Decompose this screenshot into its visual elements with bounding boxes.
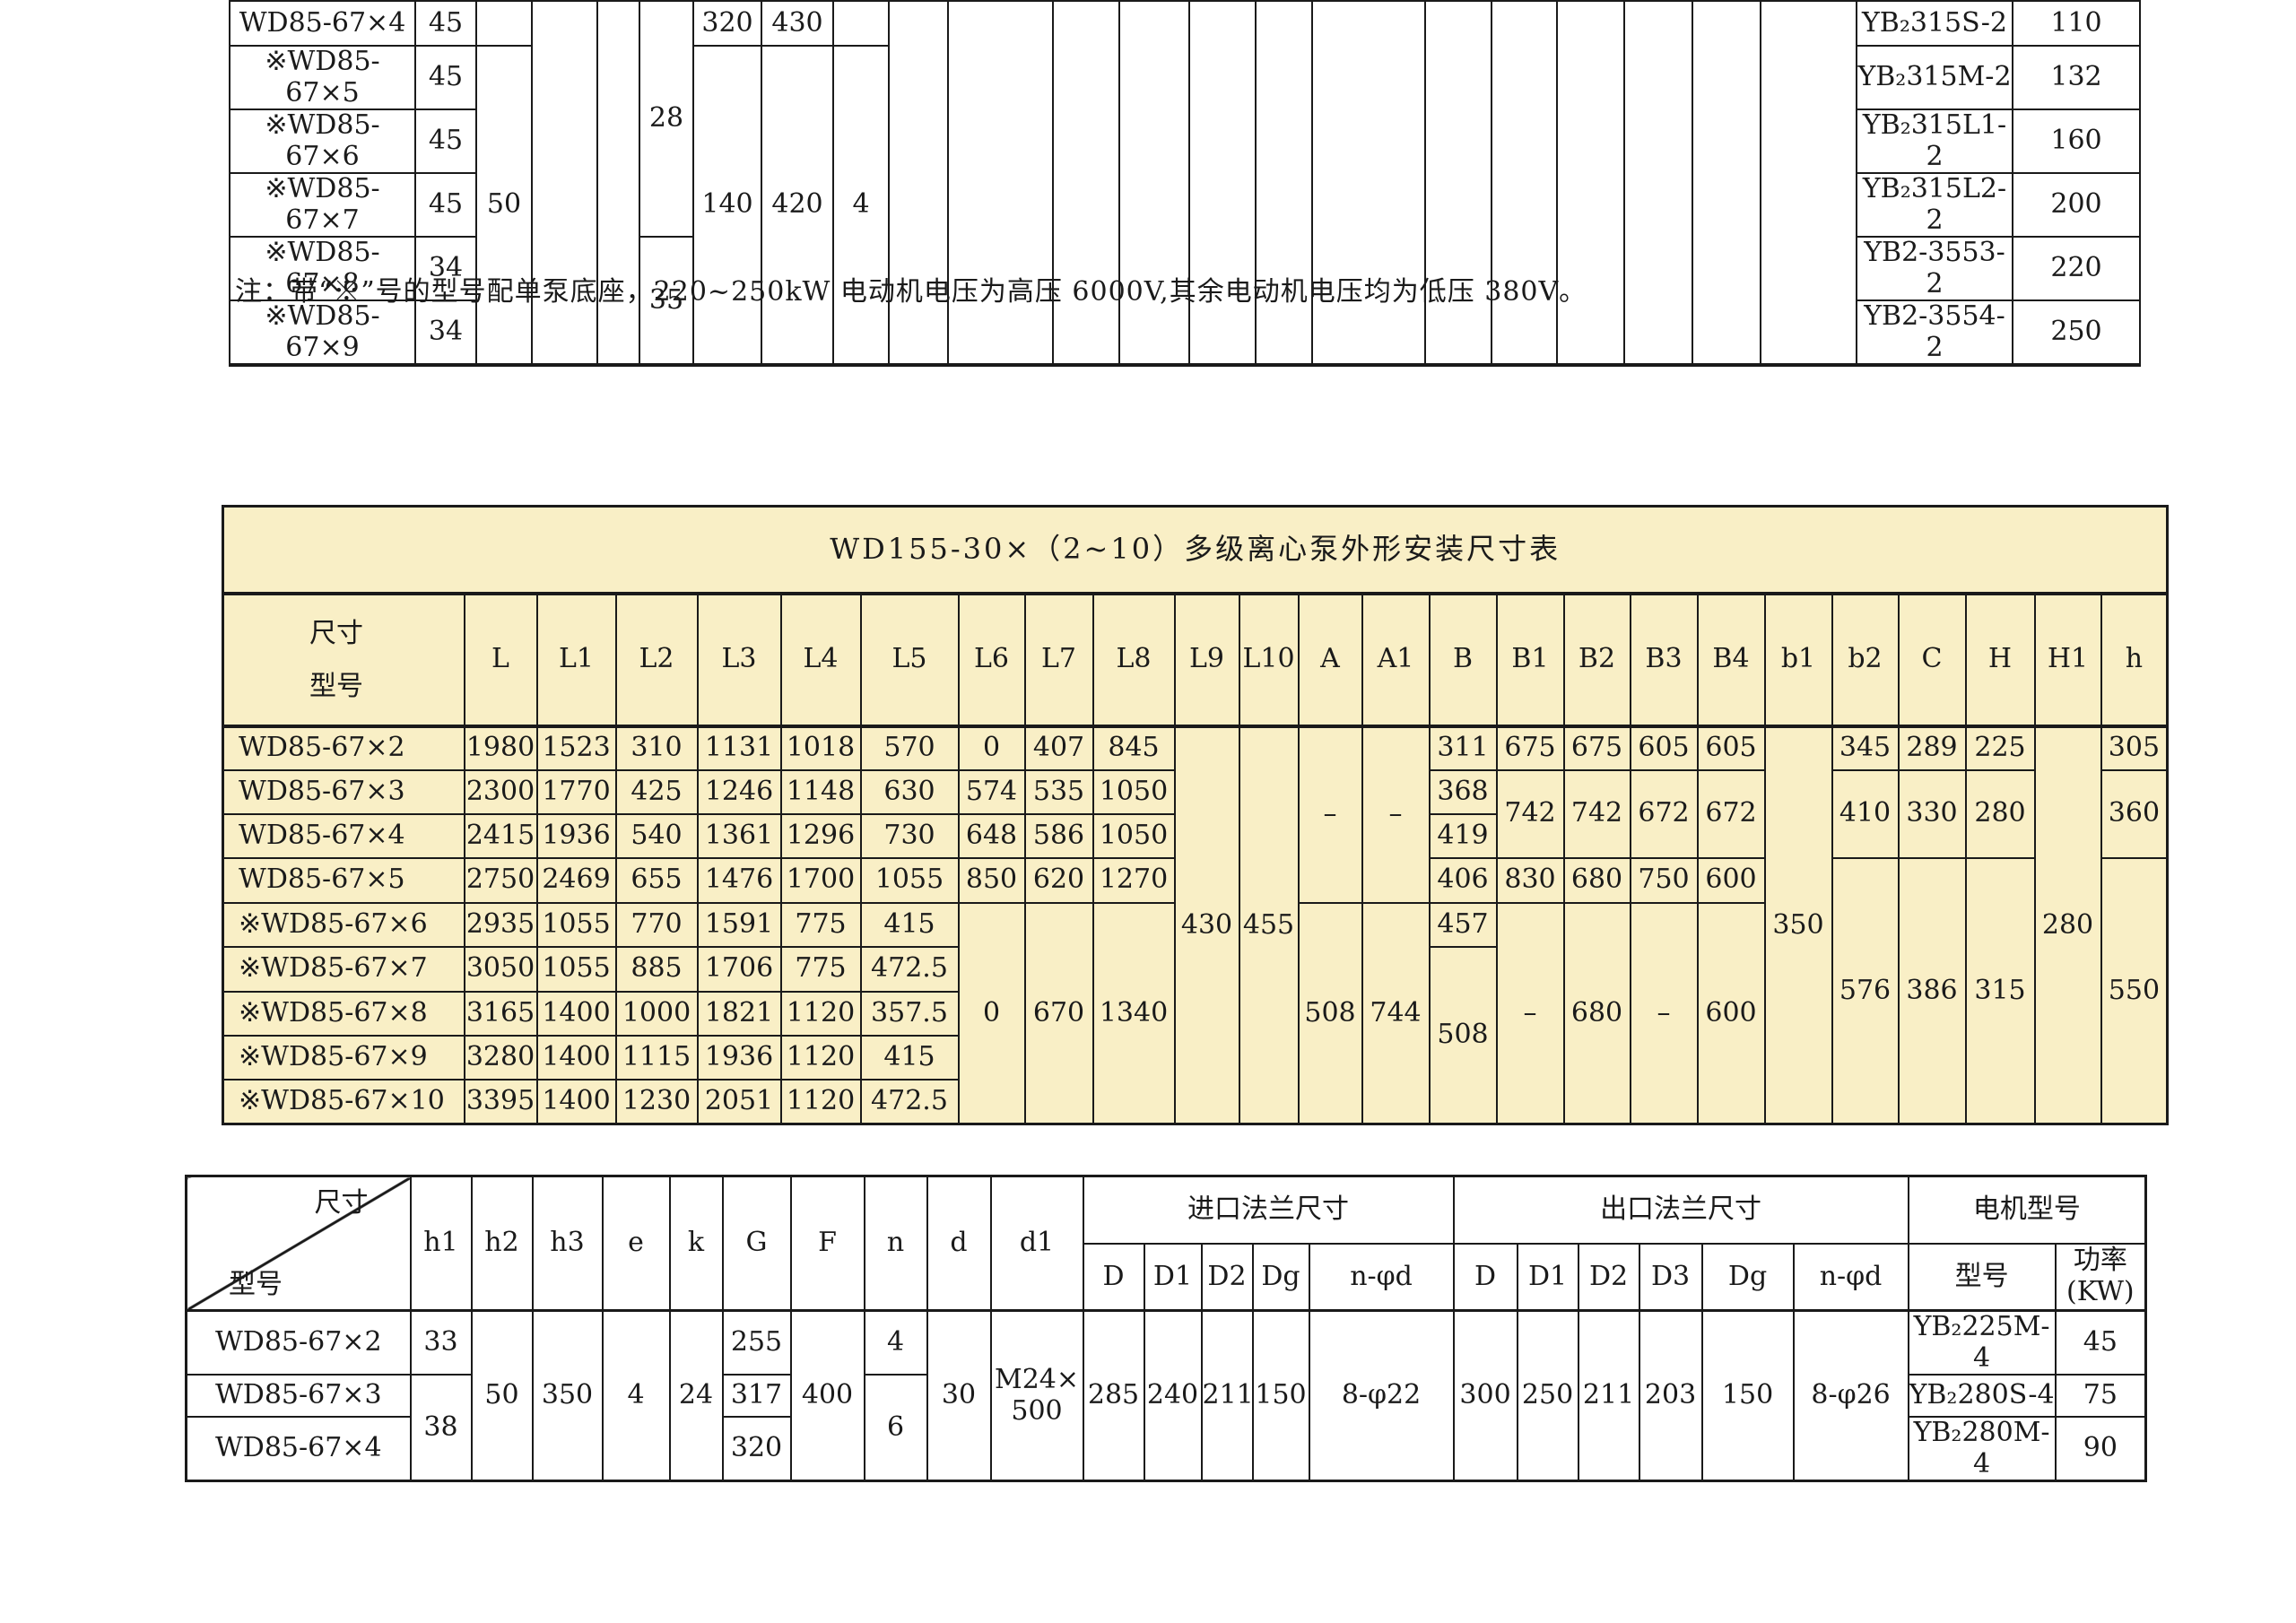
table-cell: WD85-67×5 (223, 858, 465, 903)
header-cell: n-φd (1309, 1244, 1454, 1311)
table-cell: 6 (865, 1375, 927, 1481)
table-cell: 386 (1899, 858, 1966, 1124)
table-cell: 508 (1299, 903, 1362, 1124)
header-cell: B (1430, 594, 1497, 726)
header-cell: A1 (1362, 594, 1430, 726)
table-cell: 410 (1832, 770, 1899, 858)
table-cell: 203 (1639, 1311, 1702, 1481)
table-cell: 3165 (465, 992, 537, 1036)
table-cell: ※WD85-67×10 (223, 1080, 465, 1124)
table-cell (889, 1, 948, 365)
header-cell: D (1454, 1244, 1518, 1311)
header-cell: Dg (1702, 1244, 1794, 1311)
table-cell: 419 (1430, 814, 1497, 858)
table-cell: 310 (616, 726, 698, 770)
table-cell: 320 (723, 1417, 791, 1481)
table-cell: YB₂315S-2 (1857, 1, 2013, 46)
table-cell: YB2-3554-2 (1857, 300, 2013, 365)
table-cell: 1055 (537, 947, 616, 992)
header-cell: G (723, 1176, 791, 1311)
table-cell: ※WD85-67×9 (230, 300, 415, 365)
table-cell: 1523 (537, 726, 616, 770)
table-cell: 775 (781, 947, 861, 992)
header-cell: B2 (1564, 594, 1631, 726)
table-cell: 425 (616, 770, 698, 814)
table-cell: 33 (411, 1311, 472, 1376)
table-cell: 406 (1430, 858, 1497, 903)
header-cell: h2 (472, 1176, 533, 1311)
table-cell: 742 (1497, 770, 1564, 858)
table-cell: 2051 (698, 1080, 781, 1124)
table-cell: 368 (1430, 770, 1497, 814)
table-cell: 730 (861, 814, 959, 858)
table-cell: 430 (761, 1, 833, 46)
table-cell: 1000 (616, 992, 698, 1036)
flange-motor-table: 尺寸型号h1h2h3ekGFndd1进口法兰尺寸出口法兰尺寸电机型号DD1D2D… (185, 1175, 2147, 1482)
table-cell: 315 (1966, 858, 2035, 1124)
table-cell: 45 (415, 173, 476, 237)
table-cell: 675 (1497, 726, 1564, 770)
table-cell: YB₂315M-2 (1857, 46, 2013, 109)
table-cell: 1340 (1093, 903, 1175, 1124)
table-cell: 744 (1362, 903, 1430, 1124)
table-cell: WD85-67×3 (223, 770, 465, 814)
table-cell: 1120 (781, 992, 861, 1036)
table-cell (476, 1, 532, 46)
table-cell: 655 (616, 858, 698, 903)
table-cell: – (1299, 726, 1362, 903)
header-cell: n (865, 1176, 927, 1311)
table-cell: 1230 (616, 1080, 698, 1124)
table-cell: 630 (861, 770, 959, 814)
table-cell: 350 (533, 1311, 603, 1481)
header-cell: d (927, 1176, 991, 1311)
table-cell: WD85-67×3 (187, 1375, 411, 1417)
table-cell: 2415 (465, 814, 537, 858)
table-cell: 1980 (465, 726, 537, 770)
table-cell: 1476 (698, 858, 781, 903)
table-cell: 45 (415, 1, 476, 46)
table-cell: 600 (1698, 858, 1765, 903)
header-cell: h (2101, 594, 2168, 726)
header-cell: L10 (1239, 594, 1299, 726)
table-cell: 250 (1518, 1311, 1578, 1481)
table-cell: 345 (1832, 726, 1899, 770)
table-cell: ※WD85-67×7 (223, 947, 465, 992)
header-cell: n-φd (1794, 1244, 1909, 1311)
table-cell: ※WD85-67×9 (223, 1036, 465, 1080)
header-cell: L1 (537, 594, 616, 726)
table-cell: 576 (1832, 858, 1899, 1124)
table-cell (1557, 1, 1624, 365)
header-cell: Dg (1253, 1244, 1309, 1311)
table-cell: YB₂315L2-2 (1857, 173, 2013, 237)
table-cell: 407 (1025, 726, 1093, 770)
table-cell: 1018 (781, 726, 861, 770)
table-cell: 285 (1083, 1311, 1144, 1481)
table-cell: 675 (1564, 726, 1631, 770)
table-cell: – (1631, 903, 1698, 1124)
table-cell: 150 (1702, 1311, 1794, 1481)
header-cell: L7 (1025, 594, 1093, 726)
table-cell: 45 (415, 46, 476, 109)
table-cell: WD85-67×4 (230, 1, 415, 46)
table-cell: 3050 (465, 947, 537, 992)
table-cell: 400 (791, 1311, 865, 1481)
table-cell: 1055 (861, 858, 959, 903)
table-cell: 430 (1175, 726, 1239, 1124)
table-cell: YB2-3553-2 (1857, 237, 2013, 300)
table-cell: 830 (1497, 858, 1564, 903)
header-cell: D2 (1578, 1244, 1639, 1311)
header-cell: 出口法兰尺寸 (1454, 1176, 1909, 1244)
table-cell: 45 (415, 109, 476, 173)
table-cell: 574 (959, 770, 1025, 814)
corner-label: 尺寸 (309, 619, 363, 650)
table-cell: 1400 (537, 992, 616, 1036)
table-cell: 8-φ22 (1309, 1311, 1454, 1481)
table-cell: 3395 (465, 1080, 537, 1124)
table-cell (597, 1, 639, 365)
corner-label: 尺寸 (315, 1188, 369, 1219)
header-cell: L3 (698, 594, 781, 726)
table-cell (1312, 1, 1425, 365)
table-cell: YB₂225M-4 (1909, 1311, 2056, 1376)
table-cell (1256, 1, 1312, 365)
header-cell: L8 (1093, 594, 1175, 726)
table-cell: 535 (1025, 770, 1093, 814)
header-cell: H1 (2035, 594, 2101, 726)
table-cell: 34 (415, 300, 476, 365)
header-cell: L4 (781, 594, 861, 726)
header-cell: 功率 (KW) (2056, 1244, 2146, 1311)
table-cell: 1120 (781, 1036, 861, 1080)
header-cell: 电机型号 (1909, 1176, 2146, 1244)
header-cell: b1 (1765, 594, 1832, 726)
header-cell: 型号 (1909, 1244, 2056, 1311)
table-cell: 289 (1899, 726, 1966, 770)
header-cell: D2 (1202, 1244, 1253, 1311)
table-cell: 1270 (1093, 858, 1175, 903)
table-cell (532, 1, 597, 365)
table-cell: 0 (959, 903, 1025, 1124)
table-cell (948, 1, 1053, 365)
table-cell: – (1362, 726, 1430, 903)
table-cell (1692, 1, 1761, 365)
table-cell: ※WD85-67×5 (230, 46, 415, 109)
table-cell: 132 (2013, 46, 2140, 109)
table-cell: 648 (959, 814, 1025, 858)
table-cell (1761, 1, 1857, 365)
table-cell: 1400 (537, 1036, 616, 1080)
table-cell: 211 (1578, 1311, 1639, 1481)
header-cell: k (670, 1176, 723, 1311)
table-cell: 1591 (698, 903, 781, 947)
header-cell: d1 (991, 1176, 1083, 1311)
document-page: { "note": "注：带“※”号的型号配单泵底座，220~250kW 电动机… (0, 0, 2296, 1623)
table-cell: 220 (2013, 237, 2140, 300)
table-cell: 540 (616, 814, 698, 858)
table-cell: 140 (693, 46, 761, 365)
table-cell: 1131 (698, 726, 781, 770)
table-cell: 50 (472, 1311, 533, 1481)
header-cell: 进口法兰尺寸 (1083, 1176, 1454, 1244)
table-cell: 225 (1966, 726, 2035, 770)
table-cell: 1770 (537, 770, 616, 814)
table-cell: YB₂315L1-2 (1857, 109, 2013, 173)
header-cell: D1 (1144, 1244, 1202, 1311)
table-cell: 600 (1698, 903, 1765, 1124)
table-cell: 670 (1025, 903, 1093, 1124)
table-cell: 672 (1698, 770, 1765, 858)
table-cell: 1120 (781, 1080, 861, 1124)
table-cell: 2469 (537, 858, 616, 903)
table-cell: 38 (411, 1375, 472, 1481)
header-cell: D1 (1518, 1244, 1578, 1311)
table-cell: YB₂280M-4 (1909, 1417, 2056, 1481)
header-cell: B1 (1497, 594, 1564, 726)
table-cell: 240 (1144, 1311, 1202, 1481)
table-cell: 2935 (465, 903, 537, 947)
table-cell: 770 (616, 903, 698, 947)
table-cell: 30 (927, 1311, 991, 1481)
header-cell: B3 (1631, 594, 1698, 726)
table-cell (1189, 1, 1256, 365)
table-cell: 415 (861, 1036, 959, 1080)
table-cell: 680 (1564, 858, 1631, 903)
table-cell: 620 (1025, 858, 1093, 903)
table-cell: 320 (693, 1, 761, 46)
table-cell: 350 (1765, 726, 1832, 1124)
header-cell: F (791, 1176, 865, 1311)
table-cell: YB₂280S-4 (1909, 1375, 2056, 1417)
header-cell: L5 (861, 594, 959, 726)
table-cell: 255 (723, 1311, 791, 1376)
header-cell: h1 (411, 1176, 472, 1311)
table-cell: 775 (781, 903, 861, 947)
table-cell: 885 (616, 947, 698, 992)
table-cell: 672 (1631, 770, 1698, 858)
table-cell: WD85-67×4 (223, 814, 465, 858)
table-cell: 420 (761, 46, 833, 365)
table-cell: 90 (2056, 1417, 2146, 1481)
table-cell (1119, 1, 1189, 365)
table-cell: 330 (1899, 770, 1966, 858)
table-cell (1053, 1, 1119, 365)
table-cell: ※WD85-67×6 (230, 109, 415, 173)
table-cell: 1361 (698, 814, 781, 858)
table-cell: 24 (670, 1311, 723, 1481)
table-cell: 211 (1202, 1311, 1253, 1481)
table-cell: 8-φ26 (1794, 1311, 1909, 1481)
header-cell: L (465, 594, 537, 726)
table-cell: 280 (1966, 770, 2035, 858)
table-cell: 1148 (781, 770, 861, 814)
header-cell: L6 (959, 594, 1025, 726)
table-cell: 45 (2056, 1311, 2146, 1376)
table-cell: 1400 (537, 1080, 616, 1124)
header-cell: L2 (616, 594, 698, 726)
table-cell: 110 (2013, 1, 2140, 46)
table-cell: 415 (861, 903, 959, 947)
corner-label: 型号 (229, 1270, 283, 1301)
table-cell: 605 (1631, 726, 1698, 770)
table-cell: 1936 (698, 1036, 781, 1080)
header-cell: b2 (1832, 594, 1899, 726)
table-cell: ※WD85-67×7 (230, 173, 415, 237)
header-cell: D (1083, 1244, 1144, 1311)
table-cell: 1706 (698, 947, 781, 992)
table-cell: 742 (1564, 770, 1631, 858)
table-cell: 357.5 (861, 992, 959, 1036)
table-cell: 1936 (537, 814, 616, 858)
table-cell: 586 (1025, 814, 1093, 858)
header-cell: D3 (1639, 1244, 1702, 1311)
table-cell: 28 (639, 1, 693, 237)
corner-cell: 尺寸型号 (187, 1176, 411, 1311)
table-cell: M24× 500 (991, 1311, 1083, 1481)
table-cell: 250 (2013, 300, 2140, 365)
table-cell: 0 (959, 726, 1025, 770)
header-cell: C (1899, 594, 1966, 726)
table-cell: 455 (1239, 726, 1299, 1124)
table-cell: 150 (1253, 1311, 1309, 1481)
header-cell: H (1966, 594, 2035, 726)
table-cell: 2300 (465, 770, 537, 814)
header-cell: h3 (533, 1176, 603, 1311)
table-cell: 850 (959, 858, 1025, 903)
table-cell: 2750 (465, 858, 537, 903)
table-cell: WD85-67×2 (223, 726, 465, 770)
table-cell (1492, 1, 1557, 365)
table-cell: 160 (2013, 109, 2140, 173)
pump-spec-table-top: WD85-67×44528320430YB₂315S-2110※WD85-67×… (229, 0, 2141, 367)
dimension-table-main: WD155-30×（2~10）多级离心泵外形安装尺寸表尺寸型号LL1L2L3L4… (222, 505, 2169, 1125)
table-title: WD155-30×（2~10）多级离心泵外形安装尺寸表 (223, 507, 2168, 594)
corner-cell: 尺寸型号 (223, 594, 465, 726)
table-cell: 472.5 (861, 947, 959, 992)
table-cell (1624, 1, 1692, 365)
table-cell: 75 (2056, 1375, 2146, 1417)
header-cell: L9 (1175, 594, 1239, 726)
table-cell: 360 (2101, 770, 2168, 858)
table-cell: 4 (865, 1311, 927, 1376)
table-cell: 4 (603, 1311, 670, 1481)
corner-label: 型号 (309, 672, 363, 703)
header-cell: e (603, 1176, 670, 1311)
table-cell: 1050 (1093, 770, 1175, 814)
table-cell: 845 (1093, 726, 1175, 770)
table-cell: 200 (2013, 173, 2140, 237)
table-cell: 1050 (1093, 814, 1175, 858)
table-cell: 1055 (537, 903, 616, 947)
table-cell: 280 (2035, 726, 2101, 1124)
table-cell (833, 1, 889, 46)
table-cell: 1246 (698, 770, 781, 814)
table-cell: WD85-67×2 (187, 1311, 411, 1376)
table-cell: 50 (476, 46, 532, 365)
table-cell: 4 (833, 46, 889, 365)
table-cell: ※WD85-67×6 (223, 903, 465, 947)
table-cell: 550 (2101, 858, 2168, 1124)
table-cell: 605 (1698, 726, 1765, 770)
table-cell: 457 (1430, 903, 1497, 947)
table-cell: – (1497, 903, 1564, 1124)
table-cell: 317 (723, 1375, 791, 1417)
table-cell: 300 (1454, 1311, 1518, 1481)
table-cell: 508 (1430, 947, 1497, 1124)
footnote: 注：带“※”号的型号配单泵底座，220~250kW 电动机电压为高压 6000V… (235, 269, 1587, 308)
table-cell: 305 (2101, 726, 2168, 770)
table-cell: 1115 (616, 1036, 698, 1080)
header-cell: B4 (1698, 594, 1765, 726)
table-cell: 311 (1430, 726, 1497, 770)
table-cell: 1296 (781, 814, 861, 858)
table-cell: WD85-67×4 (187, 1417, 411, 1481)
table-cell: 3280 (465, 1036, 537, 1080)
table-cell: 680 (1564, 903, 1631, 1124)
table-cell: 1821 (698, 992, 781, 1036)
header-cell: A (1299, 594, 1362, 726)
table-cell: 1700 (781, 858, 861, 903)
table-cell: 570 (861, 726, 959, 770)
table-cell (1425, 1, 1492, 365)
table-cell: ※WD85-67×8 (223, 992, 465, 1036)
table-cell: 472.5 (861, 1080, 959, 1124)
table-cell: 750 (1631, 858, 1698, 903)
